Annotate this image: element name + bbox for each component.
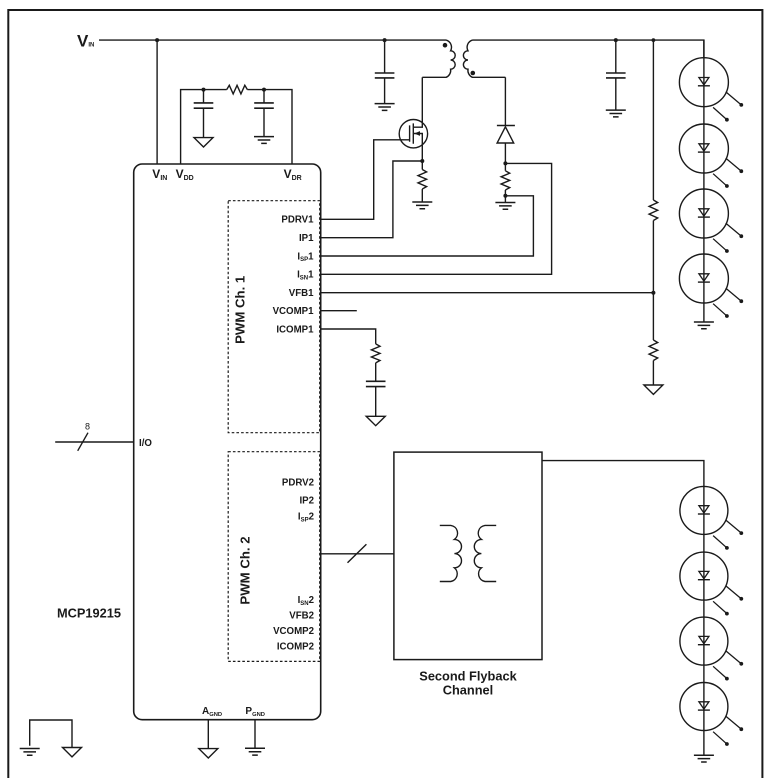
svg-text:PWM Ch. 2: PWM Ch. 2 [238,536,253,604]
svg-text:ISN2: ISN2 [298,595,314,607]
svg-text:ISP1: ISP1 [297,251,314,263]
svg-text:8: 8 [85,421,90,431]
svg-text:VFB1: VFB1 [289,288,314,299]
svg-text:ICOMP2: ICOMP2 [277,641,314,652]
svg-text:MCP19215: MCP19215 [57,606,121,621]
svg-text:IP1: IP1 [299,233,314,244]
svg-text:VCOMP1: VCOMP1 [273,306,315,317]
svg-text:VDD: VDD [176,167,194,182]
svg-text:PWM Ch. 1: PWM Ch. 1 [233,276,248,344]
svg-text:VIN: VIN [77,31,94,50]
svg-text:AGND: AGND [202,706,222,718]
svg-text:ISN1: ISN1 [297,270,314,282]
svg-text:ICOMP1: ICOMP1 [276,324,314,335]
svg-text:VIN: VIN [152,167,167,182]
svg-text:VFB2: VFB2 [289,611,314,622]
svg-text:Second Flyback: Second Flyback [419,669,517,684]
svg-text:I/O: I/O [139,438,152,449]
svg-text:PDRV2: PDRV2 [282,478,314,489]
svg-text:VDR: VDR [284,167,302,182]
svg-text:Channel: Channel [443,683,493,698]
svg-text:ISP2: ISP2 [298,512,314,524]
svg-text:IP2: IP2 [299,495,314,506]
svg-text:PDRV1: PDRV1 [281,215,314,226]
svg-text:VCOMP2: VCOMP2 [273,626,314,637]
svg-text:PGND: PGND [245,706,265,718]
